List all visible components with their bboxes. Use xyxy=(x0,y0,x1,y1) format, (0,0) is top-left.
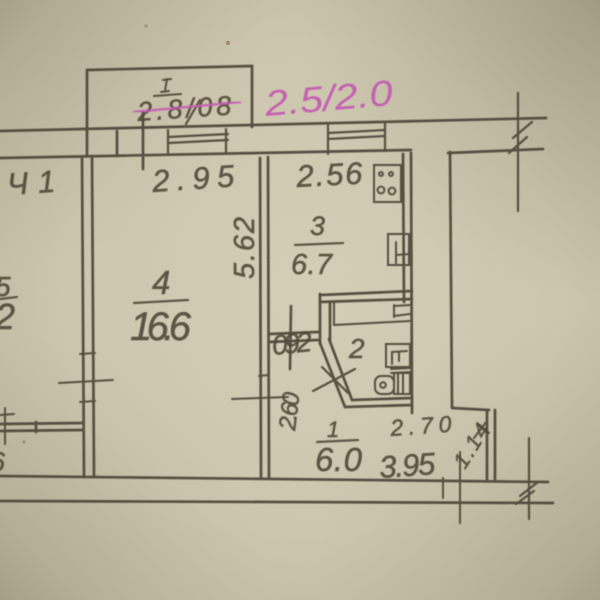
svg-text:2.56: 2.56 xyxy=(295,156,364,194)
svg-text:092: 092 xyxy=(270,326,313,361)
svg-text:3.95: 3.95 xyxy=(378,446,437,485)
svg-text:2.70: 2.70 xyxy=(389,411,453,441)
svg-text:3: 3 xyxy=(310,211,325,241)
svg-text:6.7: 6.7 xyxy=(291,249,334,281)
svg-text:16.6: 16.6 xyxy=(130,305,192,349)
svg-text:4: 4 xyxy=(152,264,170,301)
svg-text:2: 2 xyxy=(0,296,15,337)
svg-text:1: 1 xyxy=(327,417,339,442)
svg-text:5.62: 5.62 xyxy=(229,217,261,279)
svg-text:2: 2 xyxy=(348,333,365,364)
svg-text:2.95: 2.95 xyxy=(150,158,236,199)
svg-text:6.0: 6.0 xyxy=(315,441,363,478)
svg-text:2.60: 2.60 xyxy=(274,390,306,433)
